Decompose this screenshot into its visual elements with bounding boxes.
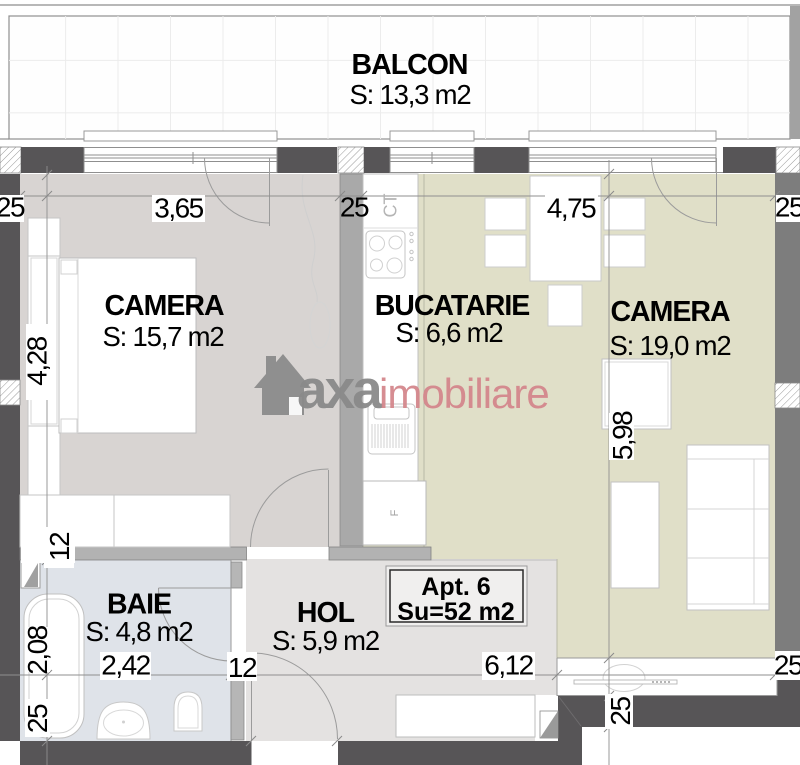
svg-text:Su=52 m2: Su=52 m2 xyxy=(397,598,514,626)
svg-text:F: F xyxy=(389,509,401,516)
svg-text:12: 12 xyxy=(44,532,75,561)
svg-text:3,65: 3,65 xyxy=(154,193,203,224)
svg-text:S: 6,6 m2: S: 6,6 m2 xyxy=(396,317,503,348)
svg-text:S: 5,9 m2: S: 5,9 m2 xyxy=(272,625,379,656)
svg-text:CT: CT xyxy=(381,194,401,218)
svg-text:Apt. 6: Apt. 6 xyxy=(421,573,490,601)
svg-text:BALCON: BALCON xyxy=(352,49,468,81)
svg-text:25: 25 xyxy=(0,192,25,223)
svg-text:12: 12 xyxy=(228,652,257,683)
svg-text:S: 4,8 m2: S: 4,8 m2 xyxy=(86,616,193,647)
svg-text:25: 25 xyxy=(774,650,800,681)
svg-text:S: 19,0 m2: S: 19,0 m2 xyxy=(610,330,731,361)
svg-text:25: 25 xyxy=(775,192,800,223)
svg-text:25: 25 xyxy=(340,192,369,223)
svg-text:S: 15,7 m2: S: 15,7 m2 xyxy=(103,321,224,352)
svg-text:axa: axa xyxy=(297,358,383,420)
svg-text:CAMERA: CAMERA xyxy=(610,296,729,328)
svg-text:5,98: 5,98 xyxy=(607,411,638,460)
svg-text:6,12: 6,12 xyxy=(484,650,533,681)
svg-text:imobiliare: imobiliare xyxy=(379,370,549,417)
svg-text:4,75: 4,75 xyxy=(547,193,596,224)
svg-text:CAMERA: CAMERA xyxy=(104,290,223,322)
svg-text:S: 13,3 m2: S: 13,3 m2 xyxy=(350,79,471,110)
svg-text:25: 25 xyxy=(605,697,636,726)
svg-text:2,42: 2,42 xyxy=(101,650,150,681)
svg-text:2,08: 2,08 xyxy=(22,625,53,674)
svg-text:25: 25 xyxy=(22,704,53,733)
svg-text:4,28: 4,28 xyxy=(22,336,53,385)
